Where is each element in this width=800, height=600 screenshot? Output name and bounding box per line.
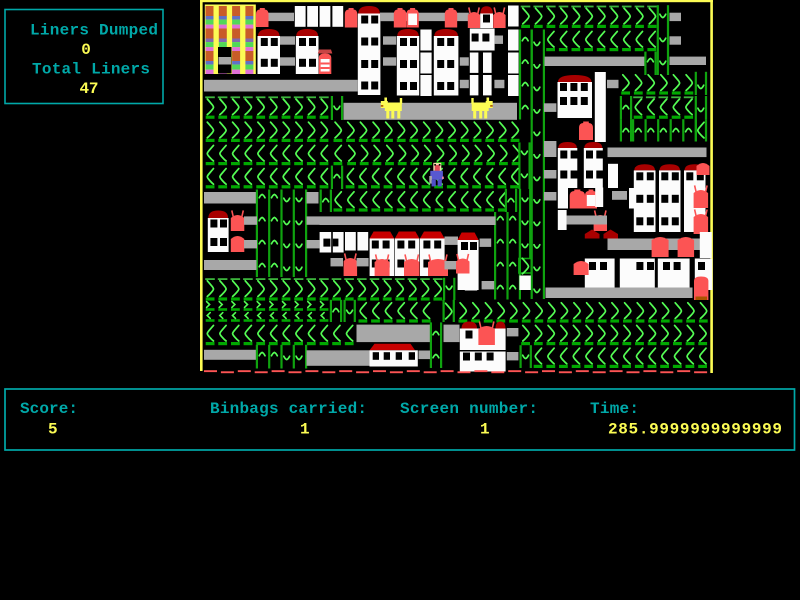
svg-text:1: 1	[300, 421, 310, 439]
svg-text:Liners Dumped: Liners Dumped	[30, 22, 158, 40]
svg-text:Total Liners: Total Liners	[32, 61, 150, 79]
svg-text:Binbags carried:: Binbags carried:	[210, 400, 367, 418]
svg-text:0: 0	[81, 41, 91, 59]
svg-text:47: 47	[80, 80, 99, 98]
svg-text:Score:: Score:	[20, 400, 78, 418]
svg-text:1: 1	[480, 421, 490, 439]
svg-text:5: 5	[48, 421, 58, 439]
svg-text:285.9999999999999: 285.9999999999999	[608, 421, 782, 439]
svg-text:Time:: Time:	[590, 400, 639, 418]
svg-text:Screen number:: Screen number:	[400, 400, 538, 418]
